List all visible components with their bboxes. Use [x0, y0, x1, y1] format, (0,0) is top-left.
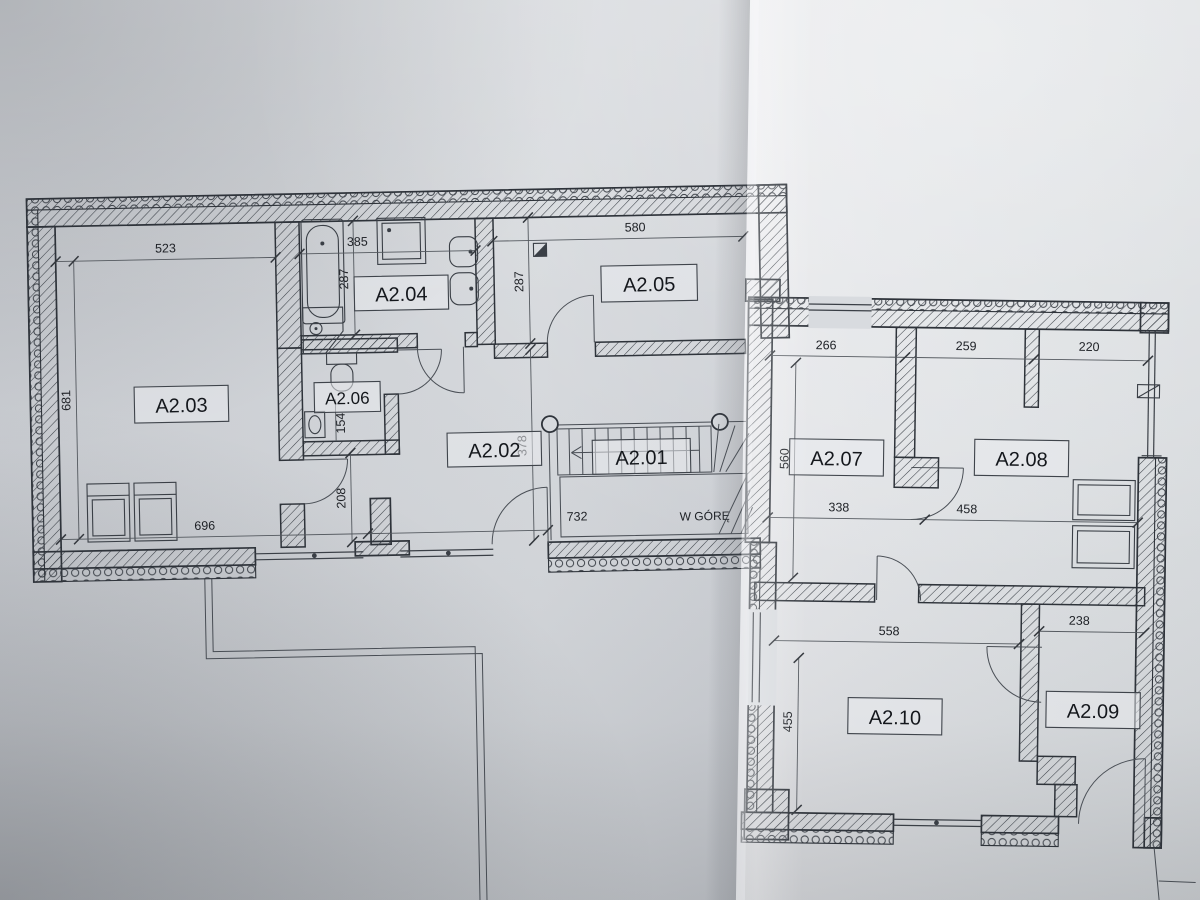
dim-a208-top-left: 259 — [956, 339, 977, 353]
room-label-a204: A2.04 — [354, 275, 449, 311]
floorplan-photo: 523 681 696 385 287 580 287 154 378 208 … — [0, 0, 1200, 900]
dim-a205-top: 580 — [625, 220, 646, 234]
svg-text:A2.05: A2.05 — [623, 274, 676, 297]
room-label-a202: A2.02 — [447, 431, 542, 467]
dim-a203-left: 681 — [59, 390, 73, 411]
svg-text:A2.10: A2.10 — [869, 707, 922, 730]
dim-stair-length: 732 — [567, 509, 588, 523]
dim-a203-bottom: 696 — [194, 519, 215, 533]
dim-a205-left: 287 — [512, 271, 526, 292]
dim-a209-top: 238 — [1069, 614, 1090, 628]
room-label-a210: A2.10 — [848, 698, 942, 735]
svg-text:A2.09: A2.09 — [1067, 701, 1120, 724]
room-label-a206: A2.06 — [314, 381, 381, 412]
dim-a203-top: 523 — [155, 241, 176, 255]
photo-lighting — [705, 0, 818, 900]
svg-text:A2.06: A2.06 — [325, 389, 370, 409]
room-label-a203: A2.03 — [134, 385, 229, 423]
svg-text:A2.04: A2.04 — [375, 283, 428, 306]
dim-a208-bottom: 458 — [956, 502, 977, 516]
dim-a207-top: 266 — [816, 338, 837, 352]
svg-text:A2.07: A2.07 — [810, 448, 863, 471]
room-label-a201: A2.01 — [592, 438, 691, 474]
dim-a207-bottom: 338 — [828, 500, 849, 514]
room-label-a208: A2.08 — [974, 439, 1068, 476]
dim-a210-top: 558 — [879, 624, 900, 638]
dim-a208-top-right: 220 — [1079, 340, 1100, 354]
svg-text:A2.02: A2.02 — [468, 440, 521, 463]
dim-a204-top: 385 — [347, 235, 368, 249]
dim-hall-left: 208 — [334, 488, 348, 509]
room-label-a209: A2.09 — [1046, 691, 1140, 728]
svg-text:A2.03: A2.03 — [155, 395, 208, 418]
svg-text:A2.08: A2.08 — [995, 449, 1048, 472]
floorplan-svg: 523 681 696 385 287 580 287 154 378 208 … — [0, 0, 1200, 900]
dim-a206-width: 154 — [334, 413, 348, 434]
svg-text:A2.01: A2.01 — [615, 447, 668, 470]
dim-a204-left: 287 — [337, 268, 351, 289]
room-label-a205: A2.05 — [601, 264, 698, 302]
